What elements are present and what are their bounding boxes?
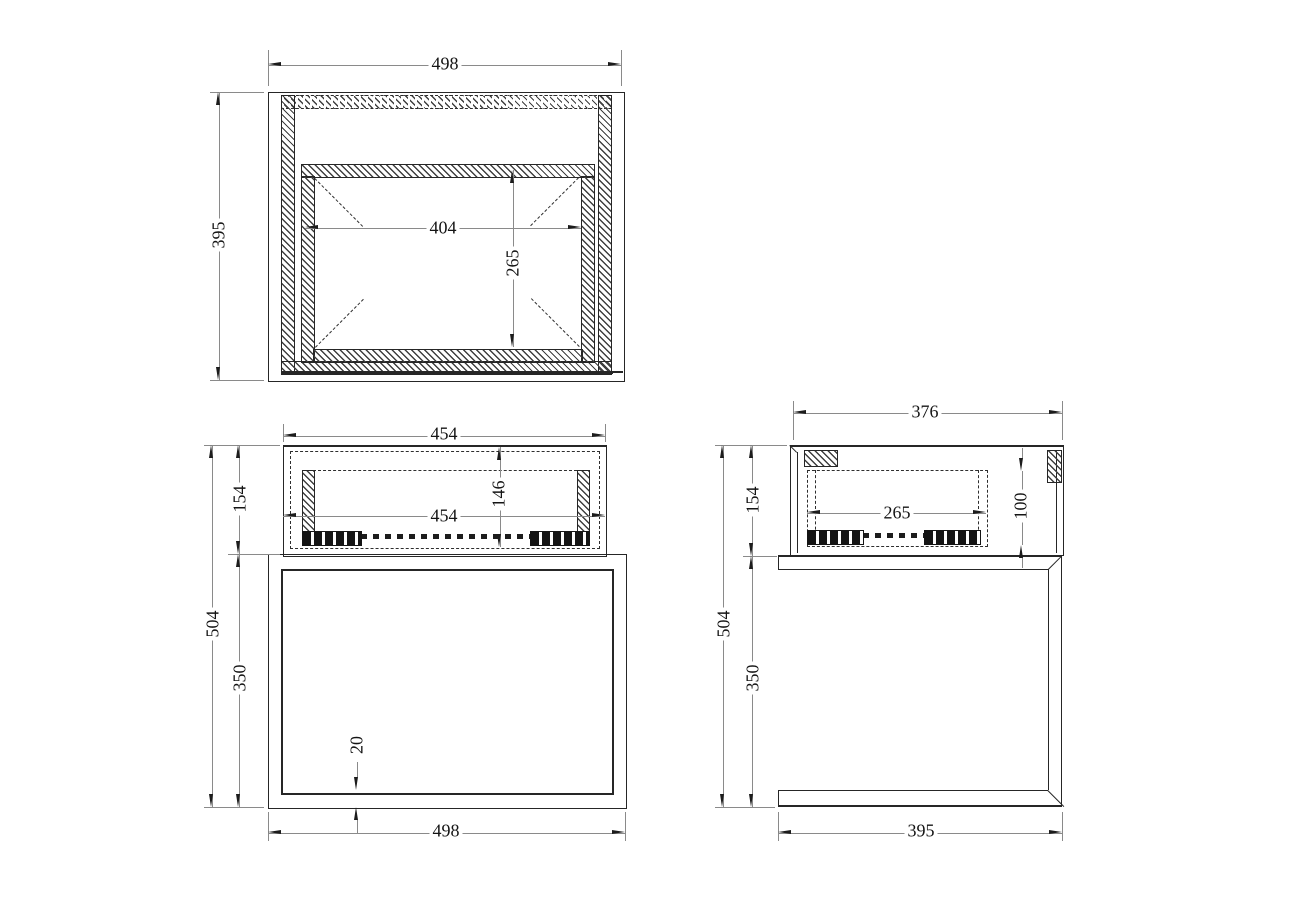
dim-arrow (216, 92, 220, 105)
dim-arrow (720, 794, 724, 807)
ext-line (204, 445, 280, 446)
dim-label-drawer-width: 454 (428, 507, 461, 526)
dim-label-base-depth: 395 (905, 822, 938, 841)
base-bottom-inner-edge (778, 790, 1048, 791)
dim-label-base-height: 350 (744, 662, 763, 695)
opening-left-wall-section (301, 176, 315, 363)
front-rail-section (804, 450, 838, 467)
back-edge-thick (281, 371, 613, 374)
hidden-front-wall-section (281, 95, 612, 109)
drawer-slide-section (530, 531, 590, 546)
hidden-edge (313, 470, 577, 471)
technical-drawing-sheet: 498 395 404 265 454 (0, 0, 1300, 919)
dim-label-overall-width: 498 (429, 55, 462, 74)
base-top-end-cap (778, 555, 779, 570)
drawer-slide-section (924, 530, 981, 545)
front-panel-edge (797, 452, 798, 553)
dim-arrow (216, 367, 220, 380)
ext-line (621, 50, 622, 86)
dim-arrow (793, 410, 806, 414)
opening-front-wall-section (301, 164, 595, 178)
ext-line (793, 401, 794, 440)
dim-label-base-width: 498 (430, 822, 463, 841)
right-wall-section (598, 95, 612, 375)
dim-line (357, 762, 358, 777)
dim-arrow (268, 62, 281, 66)
dim-label-bottom-thickness: 20 (348, 733, 367, 757)
ext-line (1062, 401, 1063, 440)
dim-arrow (1049, 410, 1062, 414)
dim-label-base-height: 350 (231, 662, 250, 695)
dim-arrow (510, 170, 514, 183)
dim-arrow (749, 556, 753, 569)
left-wall-section (281, 95, 295, 375)
dim-arrow (236, 541, 240, 554)
dim-label-drawer-width-top: 454 (428, 425, 461, 444)
dim-arrow (283, 513, 296, 517)
base-opening-outline (281, 569, 614, 795)
dim-arrow (1019, 458, 1023, 471)
dim-arrow (236, 794, 240, 807)
dim-label-drawer-inner-depth: 265 (881, 504, 914, 523)
drawer-slide-section (807, 530, 864, 545)
dim-arrow (608, 62, 621, 66)
dim-label-drawer-height: 154 (744, 484, 763, 517)
dim-arrow (1049, 830, 1062, 834)
dim-arrow (283, 433, 296, 437)
dim-arrow (612, 830, 625, 834)
dim-arrow (497, 447, 501, 460)
stray-tick (611, 371, 623, 373)
dim-line (357, 820, 358, 833)
opening-back-wall-section (313, 349, 583, 363)
base-bottom-edge (778, 805, 1062, 807)
ext-line (778, 812, 779, 841)
dim-arrow (568, 225, 581, 229)
dim-arrow (305, 225, 318, 229)
back-rail-section (1047, 450, 1062, 483)
dim-arrow (209, 445, 213, 458)
dim-arrow (510, 334, 514, 347)
dim-label-opening-width: 404 (427, 219, 460, 238)
dim-label-opening-depth: 265 (504, 247, 523, 280)
dim-arrow (497, 534, 501, 547)
dim-line (1022, 558, 1023, 568)
dim-arrow (973, 510, 986, 514)
ext-line (1062, 812, 1063, 841)
ext-line (625, 812, 626, 841)
base-bottom-end-cap (778, 790, 779, 807)
ext-line (268, 50, 269, 86)
dim-label-overall-depth: 395 (210, 219, 229, 252)
dim-label-drawer-depth: 376 (909, 403, 942, 422)
dim-arrow (268, 830, 281, 834)
dim-arrow (209, 794, 213, 807)
ext-line (743, 556, 777, 557)
dim-arrow (749, 543, 753, 556)
dim-label-drawer-height: 154 (231, 483, 250, 516)
base-back-outer-edge (1061, 556, 1063, 807)
dim-arrow (749, 445, 753, 458)
drawer-slide-section (302, 531, 362, 546)
dim-arrow (720, 445, 724, 458)
dim-label-overall-height: 504 (715, 608, 734, 641)
dim-arrow (592, 513, 605, 517)
opening-right-wall-section (581, 176, 595, 363)
dim-arrow (1019, 545, 1023, 558)
dim-label-overall-height: 504 (204, 608, 223, 641)
dim-arrow (592, 433, 605, 437)
base-top-inner-edge (778, 569, 1048, 570)
dim-arrow (807, 510, 820, 514)
dim-arrow (749, 794, 753, 807)
dim-line (1022, 448, 1023, 458)
dim-arrow (354, 807, 358, 820)
dim-arrow (354, 777, 358, 790)
dim-arrow (236, 554, 240, 567)
dim-label-drawer-inner-height: 146 (490, 478, 509, 511)
dim-arrow (778, 830, 791, 834)
dim-label-drawer-inner-height: 100 (1012, 490, 1031, 523)
dim-arrow (236, 445, 240, 458)
base-back-inner-edge (1048, 569, 1049, 790)
ext-line (268, 812, 269, 841)
